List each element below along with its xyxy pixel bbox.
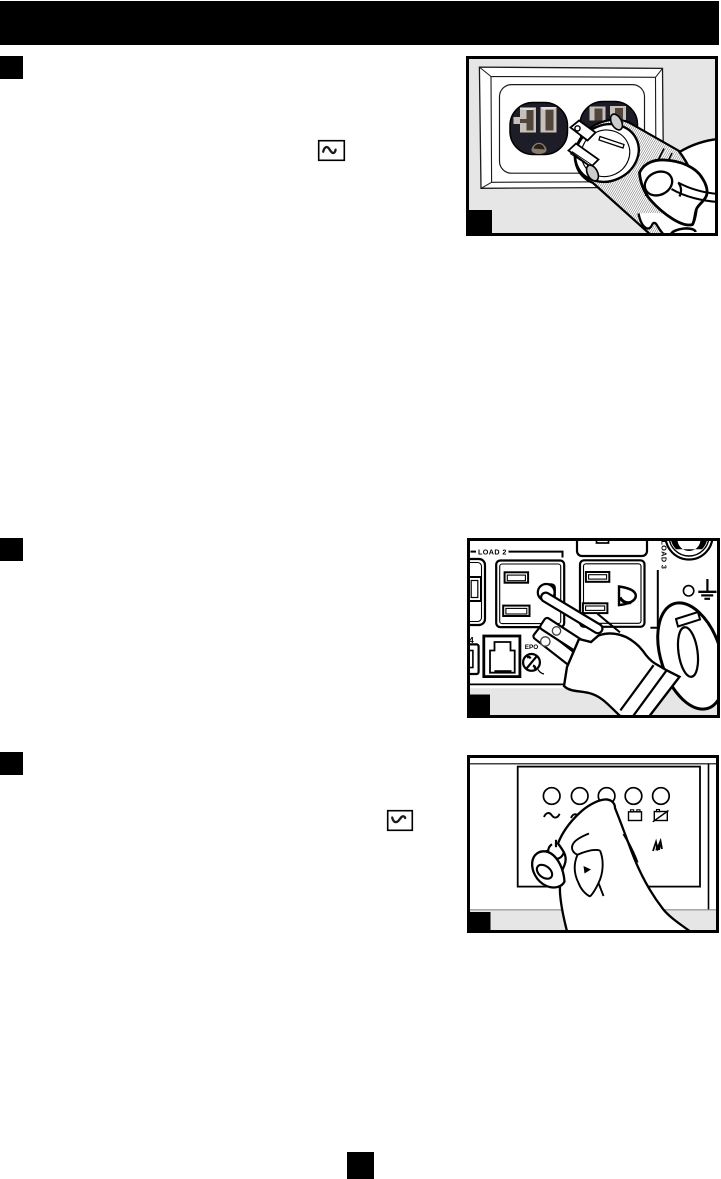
svg-text:EPO: EPO [525, 644, 539, 651]
svg-text:LOAD 2: LOAD 2 [478, 547, 507, 556]
